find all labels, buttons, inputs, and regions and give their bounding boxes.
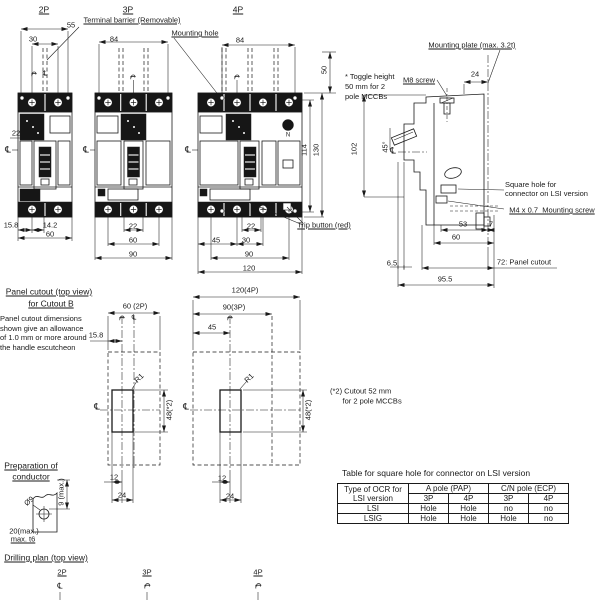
- mounting-plate-label: Mounting plate (max. 3.2t): [428, 41, 515, 50]
- m4-screw-label: M4 x 0.7 Mounting screw: [509, 206, 594, 215]
- panel-cutout-72-label: 72: Panel cutout: [497, 258, 551, 267]
- dim-24-right: 24: [226, 492, 234, 501]
- dim-24-left: 24: [118, 491, 126, 500]
- mccb-dimension-drawing: 2P3P4PTerminal barrier (Removable)Mounti…: [0, 0, 600, 600]
- cl-drill-3p: ℄: [143, 583, 152, 588]
- dim-9-max: 9 (max.): [57, 478, 66, 506]
- pole-n-marking: N: [286, 132, 290, 141]
- dim-15-8-pc: 15.8: [89, 331, 104, 340]
- dim-120-4p-pc: 120(4P): [232, 286, 259, 295]
- table-row: LSIG Hole Hole Hole no: [338, 514, 569, 524]
- table-cell-group-a: A pole (PAP): [409, 484, 489, 494]
- cl-mark-pc-b: ℄: [132, 314, 137, 323]
- table-cell-sub: 3P: [489, 494, 529, 504]
- dim-7: 7: [489, 220, 493, 229]
- table-cell-sub: 4P: [529, 494, 569, 504]
- dim-48-left: 48(*2): [165, 400, 174, 420]
- view-label-4p: 4P: [233, 6, 243, 15]
- dim-60-3p: 60: [129, 236, 137, 245]
- table-cell-value: no: [529, 504, 569, 514]
- view-label-3p: 3P: [123, 6, 133, 15]
- panel-cutout-left: [90, 313, 168, 503]
- dim-22-4p: 22: [247, 222, 255, 231]
- drill-3p: 3P: [142, 568, 151, 577]
- dim-53: 53: [459, 220, 467, 229]
- col1-header-line1: Type of OCR for: [344, 485, 402, 494]
- cl-3p: ℄: [83, 146, 89, 155]
- dim-6-5: 6.5: [387, 259, 397, 268]
- drill-title: Drilling plan (top view): [4, 554, 88, 563]
- table-cell-col1-header: Type of OCR for LSI version: [338, 484, 409, 504]
- dim-60-2p-bottom: 60: [46, 230, 54, 239]
- table-cell-value: Hole: [449, 514, 489, 524]
- cl-drill-2p: ℄: [57, 582, 62, 591]
- dim-55: 55: [67, 21, 75, 30]
- toggle-height-note: * Toggle height 50 mm for 2 pole MCCBs: [345, 72, 403, 102]
- table-row: LSI Hole Hole no no: [338, 504, 569, 514]
- dim-84-4p: 84: [236, 36, 244, 45]
- col1-header-line2: LSI version: [353, 494, 393, 503]
- cutout-52-note: (*2) Cutout 52 mm for 2 pole MCCBs: [330, 387, 396, 406]
- dim-84-3p: 84: [110, 35, 118, 44]
- dim-45-pc: 45: [208, 323, 216, 332]
- dim-90-3p-pc: 90(3P): [223, 303, 246, 312]
- pc-note: Panel cutout dimensions shown give an al…: [0, 314, 94, 352]
- table-cell-value: Hole: [409, 514, 449, 524]
- dim-48-right: 48(*2): [304, 400, 313, 420]
- dim-22-2p: 22: [12, 129, 20, 138]
- m8-screw-label: M8 screw: [403, 76, 435, 85]
- dim-120-4p-bottom: 120: [243, 264, 256, 273]
- prep-title-line1: Preparation of: [4, 462, 57, 471]
- view-label-2p: 2P: [39, 6, 49, 15]
- cl-pc-left: ℄: [94, 403, 100, 412]
- table-cell-sub: 3P: [409, 494, 449, 504]
- table-title: Table for square hole for connector on L…: [342, 468, 530, 478]
- dim-45-4p: 45: [212, 236, 220, 245]
- dim-90-4p: 90: [245, 250, 253, 259]
- cl-mark-2p-a: ℄: [29, 72, 38, 77]
- table-cell-value: no: [489, 504, 529, 514]
- dim-14-2: 14.2: [43, 221, 58, 230]
- table-cell-value: Hole: [449, 504, 489, 514]
- cl-mark-4p: ℄: [232, 75, 241, 80]
- dim-24-side: 24: [471, 70, 479, 79]
- dim-95-5: 95.5: [438, 275, 453, 284]
- square-hole-label: Square hole for connector on LSI version: [505, 180, 597, 198]
- dim-50-toggle: 50: [320, 66, 329, 74]
- terminal-barrier-label: Terminal barrier (Removable): [83, 16, 180, 25]
- prep-title-line2: conductor: [12, 473, 49, 482]
- trip-button-label: Trip button (red): [297, 221, 351, 230]
- table-cell-sub: 4P: [449, 494, 489, 504]
- pc-title-line2: for Cutout B: [28, 300, 73, 309]
- dim-114: 114: [300, 144, 309, 156]
- cl-drill-4p: ℄: [254, 583, 263, 588]
- dim-22-3p: 22: [129, 222, 137, 231]
- cl-mark-pc-a: ℄: [117, 316, 126, 321]
- table-cell-group-cn: C/N pole (ECP): [489, 484, 569, 494]
- dim-102: 102: [350, 143, 359, 156]
- dim-15-8-2p: 15.8: [4, 221, 19, 230]
- dim-30-2p: 30: [29, 35, 37, 44]
- cl-mark-3p: ℄: [128, 75, 137, 80]
- drill-4p: 4P: [253, 568, 262, 577]
- cl-2p: ℄: [5, 146, 11, 155]
- table-cell-value: Hole: [489, 514, 529, 524]
- dim-130: 130: [312, 144, 321, 157]
- drilling-plan: [60, 592, 258, 600]
- note-max-t6: max. t6: [11, 535, 36, 544]
- dim-90-3p-bottom: 90: [129, 250, 137, 259]
- cl-mark-2p-b: ℄: [43, 70, 48, 79]
- mounting-hole-label: Mounting hole: [171, 29, 218, 38]
- pc-title-line1: Panel cutout (top view): [6, 288, 92, 297]
- dim-45-deg: 45°: [381, 141, 390, 152]
- dim-12-left: 12: [110, 473, 118, 482]
- cl-pc-right: ℄: [183, 403, 189, 412]
- dim-12-right: 12: [218, 474, 226, 483]
- table-cell-value: Hole: [409, 504, 449, 514]
- cl-4p: ℄: [185, 146, 191, 155]
- dim-60-2p-pc: 60 (2P): [123, 302, 148, 311]
- dim-60-side: 60: [452, 233, 460, 242]
- dim-30-4p: 30: [242, 236, 250, 245]
- cl-mark-pc-c: ℄: [225, 316, 234, 321]
- table-cell-value: no: [529, 514, 569, 524]
- table-row: Type of OCR for LSI version A pole (PAP)…: [338, 484, 569, 494]
- square-hole-table: Type of OCR for LSI version A pole (PAP)…: [337, 483, 569, 524]
- table-cell-row-name: LSI: [338, 504, 409, 514]
- cl-side: ℄: [390, 147, 396, 156]
- table-cell-row-name: LSIG: [338, 514, 409, 524]
- drill-2p: 2P: [57, 568, 66, 577]
